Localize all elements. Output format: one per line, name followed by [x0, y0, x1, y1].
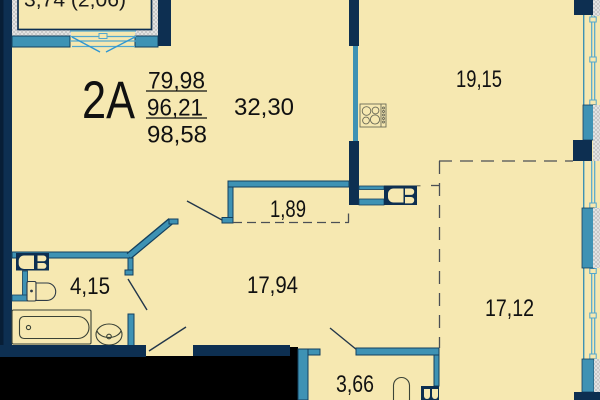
- svg-text:3,66: 3,66: [336, 371, 374, 398]
- svg-text:19,15: 19,15: [456, 66, 502, 93]
- svg-text:17,12: 17,12: [485, 295, 534, 322]
- svg-text:17,94: 17,94: [247, 272, 298, 299]
- svg-text:3,74 (2,06): 3,74 (2,06): [24, 0, 126, 12]
- svg-text:32,30: 32,30: [234, 94, 294, 121]
- svg-text:2A: 2A: [82, 71, 136, 130]
- svg-text:4,15: 4,15: [70, 273, 110, 300]
- svg-text:98,58: 98,58: [147, 122, 207, 149]
- svg-text:1,89: 1,89: [270, 196, 306, 223]
